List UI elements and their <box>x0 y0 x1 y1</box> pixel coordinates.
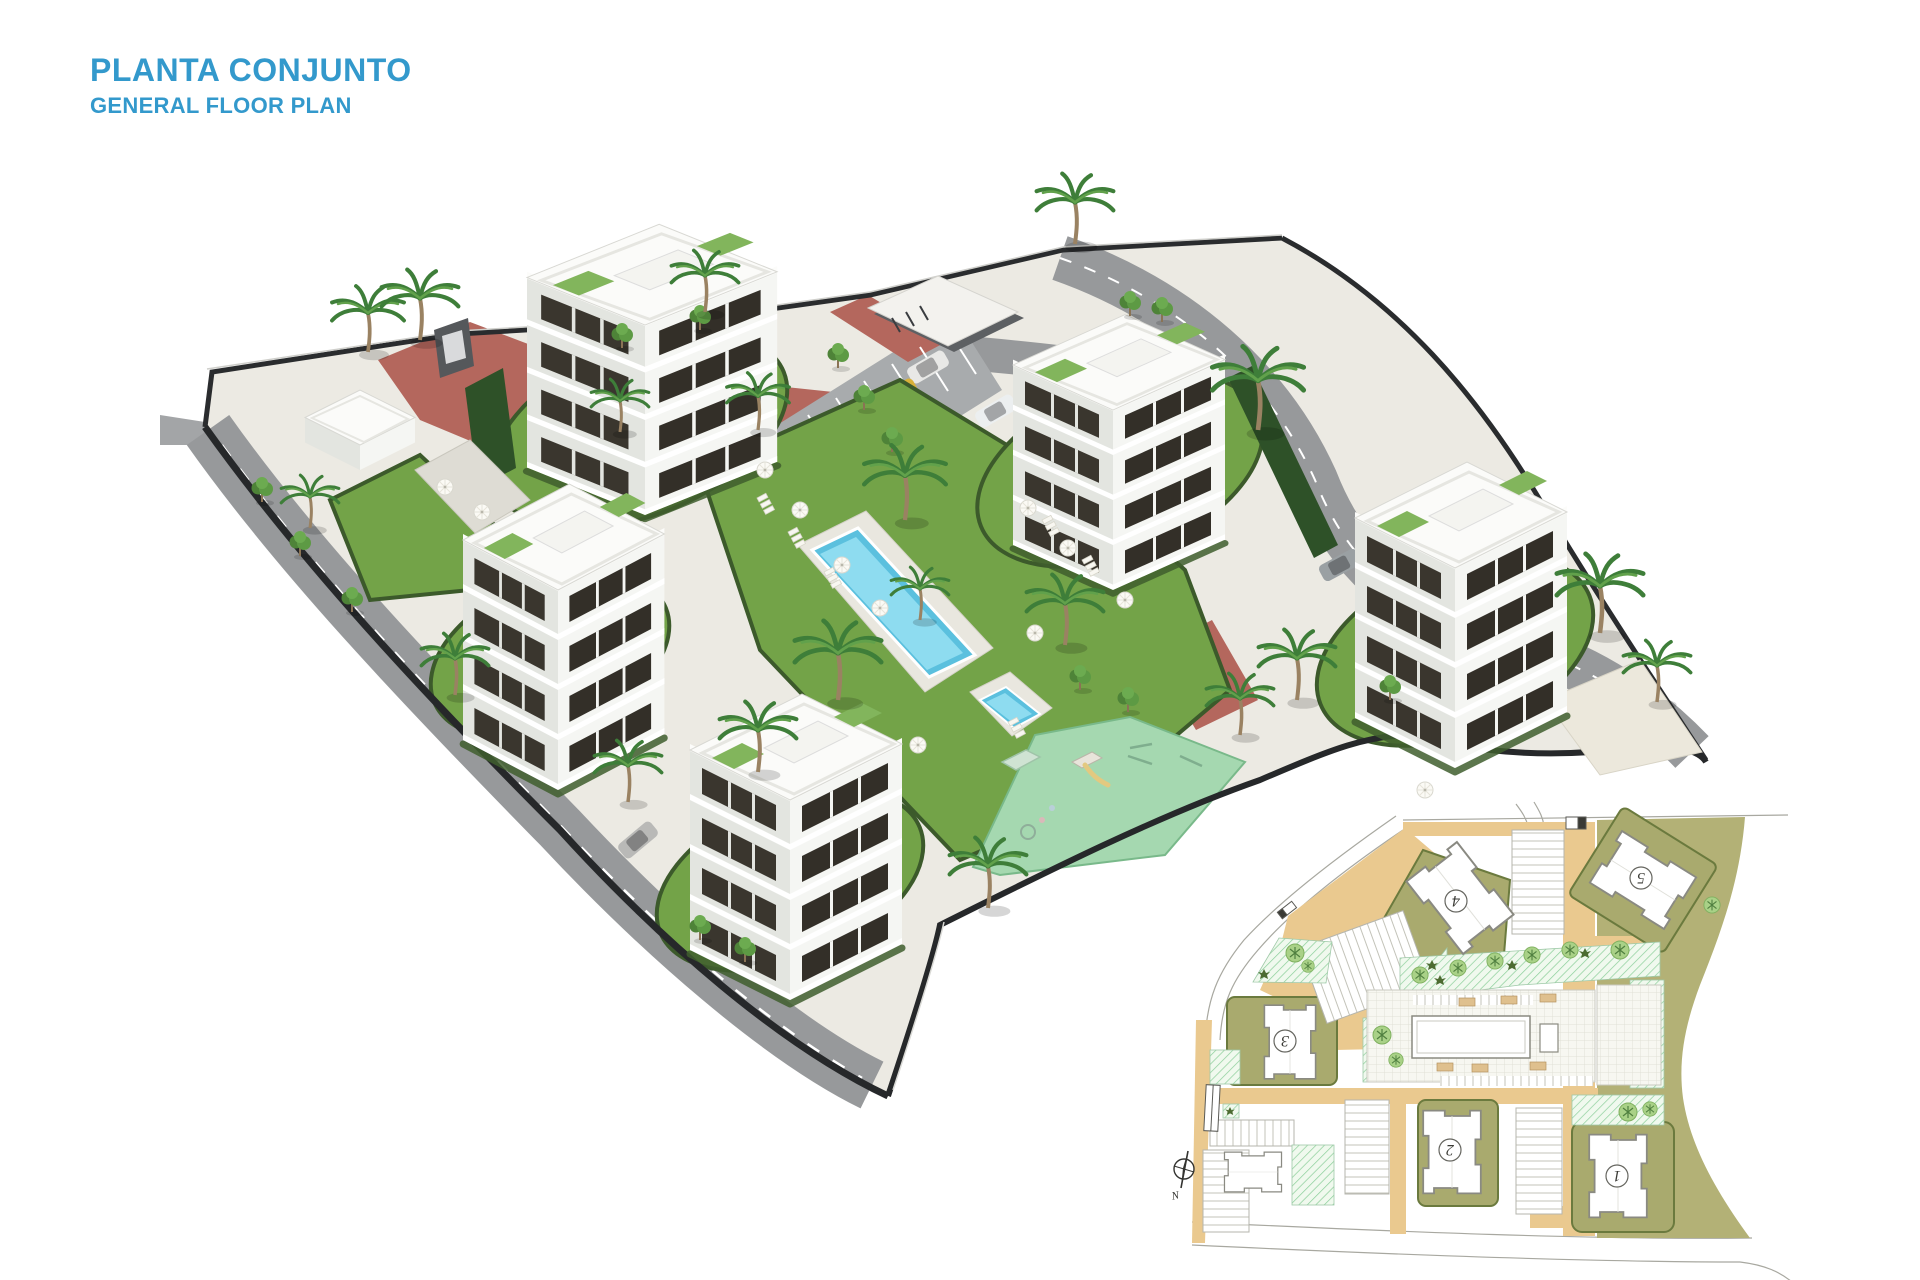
parasol-icon <box>1060 540 1076 556</box>
parasol-icon <box>757 462 773 478</box>
building-top-right <box>1013 315 1225 594</box>
palm-tree-icon <box>1037 174 1114 253</box>
tree-icon <box>1643 1102 1657 1116</box>
parasol-icon <box>792 502 808 518</box>
site-plan-inset: 1 2 3 4 5 N <box>1170 802 1792 1280</box>
building-bottom-center <box>690 694 902 1004</box>
plan-building-annex <box>1224 1152 1281 1192</box>
tree-icon <box>1562 942 1578 958</box>
plan-pool-area <box>1367 985 1661 1086</box>
building-label-4: 4 <box>1452 892 1460 909</box>
building-label-5: 5 <box>1637 869 1645 886</box>
building-top-left <box>527 224 777 519</box>
building-right <box>1355 462 1567 772</box>
parasol-icon <box>1117 592 1133 608</box>
building-label-2: 2 <box>1446 1141 1454 1158</box>
parasol-icon <box>1417 782 1433 798</box>
parasol-icon <box>834 557 850 573</box>
compass-icon: N <box>1170 1151 1194 1203</box>
tree-icon <box>1286 944 1304 962</box>
compass-label: N <box>1170 1189 1181 1203</box>
parasol-icon <box>437 479 453 495</box>
tree-icon <box>1619 1103 1637 1121</box>
tree-icon <box>1704 897 1720 913</box>
masterplan-canvas: 1 2 3 4 5 N <box>0 0 1920 1280</box>
tree-icon <box>1524 947 1540 963</box>
tree-icon <box>1450 960 1466 976</box>
parasol-icon <box>1027 625 1043 641</box>
tree-icon <box>1389 1053 1403 1067</box>
parasol-icon <box>474 504 490 520</box>
parasol-icon <box>910 737 926 753</box>
tree-icon <box>1487 953 1503 969</box>
tree-icon <box>1412 967 1428 983</box>
building-label-1: 1 <box>1613 1167 1621 1184</box>
building-label-3: 3 <box>1281 1032 1290 1049</box>
tree-icon <box>1302 960 1315 973</box>
parasol-icon <box>1020 500 1036 516</box>
tree-icon <box>1611 941 1629 959</box>
tree-icon <box>1373 1026 1391 1044</box>
parasol-icon <box>872 600 888 616</box>
